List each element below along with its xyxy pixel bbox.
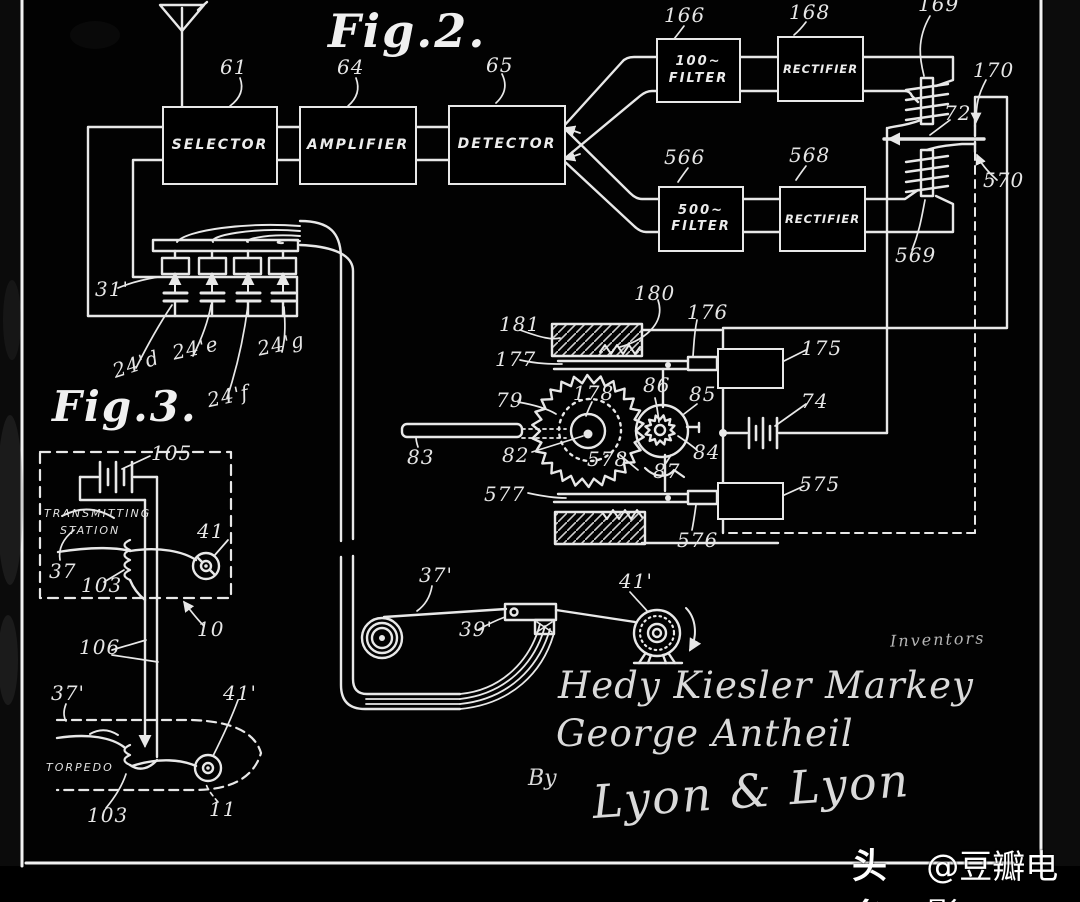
rectifier-2-label: RECTIFIER — [785, 212, 860, 226]
ref-31p: 31' — [95, 279, 129, 299]
ref-103: 103 — [81, 575, 122, 595]
ref-37p-tape: 37' — [419, 565, 453, 585]
rectifier-2-box: RECTIFIER — [779, 186, 866, 252]
fig3-diagram — [40, 452, 261, 790]
tape-reader-assembly — [362, 604, 695, 663]
amplifier-label: AMPLIFIER — [307, 137, 409, 155]
filter-500-line2: FILTER — [671, 219, 731, 235]
magnet-575-box — [717, 482, 784, 520]
filter-500-line1: 500~ — [678, 203, 724, 219]
ref-575: 575 — [799, 474, 840, 494]
ref-569: 569 — [895, 245, 936, 265]
station-label-line2: STATION — [60, 523, 120, 540]
ref-41: 41 — [197, 521, 224, 541]
detector-box: DETECTOR — [448, 105, 566, 185]
torpedo-outline — [57, 720, 261, 790]
ref-576: 576 — [677, 530, 718, 550]
ref-176: 176 — [687, 302, 728, 322]
ref-84: 84 — [693, 442, 720, 462]
ref-41p-tape: 41' — [619, 571, 653, 591]
detector-label: DETECTOR — [458, 136, 557, 154]
signature-inventor-2: George Antheil — [556, 712, 854, 755]
ref-181: 181 — [499, 314, 540, 334]
ref-72: 72 — [944, 103, 971, 123]
watermark-account: @豆瓣电影 — [926, 840, 1080, 902]
ref-37: 37 — [49, 561, 76, 581]
ref-41pb: 41' — [223, 683, 257, 703]
ref-168: 168 — [789, 2, 830, 22]
film-noise — [0, 21, 120, 705]
watermark: 头条 @豆瓣电影 — [852, 838, 1080, 902]
station-label-line1: TRANSMITTING — [44, 506, 151, 523]
ref-578: 578 — [587, 449, 628, 469]
ref-82: 82 — [502, 445, 529, 465]
ref-568: 568 — [789, 145, 830, 165]
filter-100-box: 100~ FILTER — [656, 38, 741, 103]
ref-170: 170 — [973, 60, 1014, 80]
ref-64: 64 — [337, 57, 364, 77]
ref-37p: 37' — [51, 683, 85, 703]
shaft-83 — [402, 424, 522, 437]
ribbon-cable — [177, 221, 554, 709]
relay-assembly — [723, 57, 1007, 533]
ref-79: 79 — [496, 390, 523, 410]
ref-577: 577 — [484, 484, 525, 504]
ref-85: 85 — [689, 384, 716, 404]
ref-566: 566 — [664, 147, 705, 167]
magnet-175-box — [717, 348, 784, 389]
ref-175: 175 — [801, 338, 842, 358]
coil-103-icon — [125, 540, 131, 580]
watermark-brand: 头条 — [852, 838, 917, 902]
fig3-title: Fig.3. — [52, 386, 198, 428]
selector-box: SELECTOR — [162, 106, 278, 185]
filter-100-line1: 100~ — [675, 54, 721, 70]
fig2-title: Fig.2. — [328, 8, 486, 54]
signature-inventor-1: Hedy Kiesler Markey — [558, 664, 974, 707]
torpedo-coil-icon — [125, 745, 131, 765]
ref-83: 83 — [407, 447, 434, 467]
by-label: By — [528, 766, 557, 791]
ref-166: 166 — [664, 5, 705, 25]
ref-169: 169 — [918, 0, 959, 14]
selector-label: SELECTOR — [172, 137, 269, 155]
amplifier-box: AMPLIFIER — [299, 106, 417, 185]
ref-177: 177 — [495, 349, 536, 369]
ref-10: 10 — [197, 619, 224, 639]
rectifier-1-label: RECTIFIER — [783, 62, 858, 76]
ref-106: 106 — [79, 637, 120, 657]
ref-86: 86 — [643, 375, 670, 395]
ref-39p: 39' — [459, 619, 493, 639]
pinion-ring-85 — [636, 405, 688, 457]
battery-74-icon — [749, 418, 777, 448]
ref-87: 87 — [653, 461, 680, 481]
filter-100-line2: FILTER — [669, 71, 729, 87]
ref-11: 11 — [209, 799, 236, 819]
filter-500-box: 500~ FILTER — [658, 186, 744, 252]
ref-180: 180 — [634, 283, 675, 303]
inventors-label: Inventors — [890, 628, 986, 650]
ref-61: 61 — [220, 57, 247, 77]
ref-105: 105 — [151, 443, 192, 463]
antenna-icon — [160, 2, 207, 106]
ref-103b: 103 — [87, 805, 128, 825]
ref-74: 74 — [801, 391, 828, 411]
rectifier-1-box: RECTIFIER — [777, 36, 864, 102]
escapement-mechanism — [402, 324, 717, 544]
torpedo-label: TORPEDO — [46, 760, 114, 777]
patent-drawing-page: SELECTOR AMPLIFIER DETECTOR 100~ FILTER … — [0, 0, 1080, 902]
pinion-84 — [645, 415, 674, 444]
ref-178: 178 — [573, 383, 614, 403]
ref-570: 570 — [983, 170, 1024, 190]
ref-65: 65 — [486, 55, 513, 75]
